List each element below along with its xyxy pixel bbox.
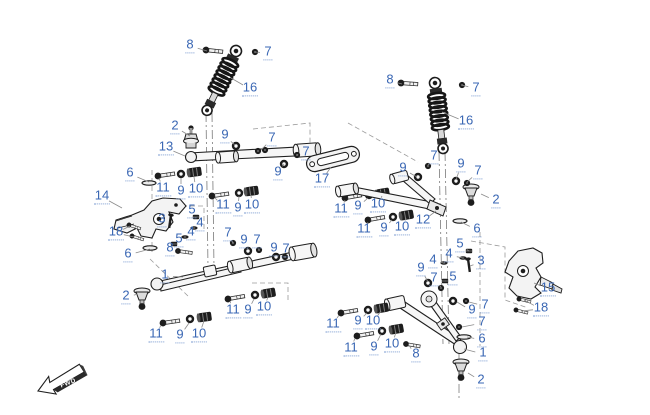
part-callout-11[interactable]: 11 xyxy=(215,197,231,213)
part-callout-9[interactable]: 9 xyxy=(175,327,184,343)
part-callout-3[interactable]: 3 xyxy=(157,211,166,227)
part-callout-7[interactable]: 7 xyxy=(223,225,232,241)
part-callout-17[interactable]: 17 xyxy=(314,171,330,187)
part-callout-10[interactable]: 10 xyxy=(384,336,400,352)
part-callout-8[interactable]: 8 xyxy=(411,346,420,362)
part-callout-5[interactable]: 5 xyxy=(455,236,464,252)
part-callout-10[interactable]: 10 xyxy=(370,196,386,212)
part-callout-9[interactable]: 9 xyxy=(239,232,248,248)
part-callout-16[interactable]: 16 xyxy=(458,113,474,129)
parts-diagram-page: FWD 871621397796119101411910534184586797… xyxy=(0,0,650,415)
part-callout-9[interactable]: 9 xyxy=(353,198,362,214)
part-callout-9[interactable]: 9 xyxy=(369,339,378,355)
part-callout-7[interactable]: 7 xyxy=(471,80,480,96)
part-callout-9[interactable]: 9 xyxy=(273,164,282,180)
part-callout-10[interactable]: 10 xyxy=(365,313,381,329)
part-callout-7[interactable]: 7 xyxy=(267,130,276,146)
part-callout-7[interactable]: 7 xyxy=(252,232,261,248)
part-callout-9[interactable]: 9 xyxy=(176,183,185,199)
part-callout-11[interactable]: 11 xyxy=(225,302,241,318)
part-callout-10[interactable]: 10 xyxy=(244,197,260,213)
part-callout-18[interactable]: 18 xyxy=(108,224,124,240)
part-callout-7[interactable]: 7 xyxy=(263,44,272,60)
part-callout-11[interactable]: 11 xyxy=(356,221,372,237)
part-callout-11[interactable]: 11 xyxy=(325,316,341,332)
part-callout-4[interactable]: 4 xyxy=(186,224,195,240)
part-callout-7[interactable]: 7 xyxy=(281,241,290,257)
part-callout-3[interactable]: 3 xyxy=(476,253,485,269)
part-callout-9[interactable]: 9 xyxy=(353,313,362,329)
part-callout-9[interactable]: 9 xyxy=(243,302,252,318)
part-callout-6[interactable]: 6 xyxy=(472,221,481,237)
part-callout-11[interactable]: 11 xyxy=(343,340,359,356)
part-callout-9[interactable]: 9 xyxy=(379,220,388,236)
part-callout-2[interactable]: 2 xyxy=(121,288,130,304)
part-callout-9[interactable]: 9 xyxy=(416,260,425,276)
part-callout-9[interactable]: 9 xyxy=(456,156,465,172)
part-callout-7[interactable]: 7 xyxy=(429,270,438,286)
part-callout-13[interactable]: 13 xyxy=(158,139,174,155)
part-callout-16[interactable]: 16 xyxy=(242,80,258,96)
part-callout-1[interactable]: 1 xyxy=(478,345,487,361)
part-callout-9[interactable]: 9 xyxy=(220,127,229,143)
part-callout-2[interactable]: 2 xyxy=(170,118,179,134)
part-callout-11[interactable]: 11 xyxy=(155,180,171,196)
part-callout-8[interactable]: 8 xyxy=(185,37,194,53)
part-callout-8[interactable]: 8 xyxy=(165,240,174,256)
part-callout-9[interactable]: 9 xyxy=(398,160,407,176)
part-callout-5[interactable]: 5 xyxy=(448,269,457,285)
part-callout-9[interactable]: 9 xyxy=(233,200,242,216)
part-callout-11[interactable]: 11 xyxy=(333,201,349,217)
part-callout-10[interactable]: 10 xyxy=(256,299,272,315)
part-callout-4[interactable]: 4 xyxy=(428,252,437,268)
part-callout-11[interactable]: 11 xyxy=(148,326,164,342)
part-callout-2[interactable]: 2 xyxy=(476,372,485,388)
part-callout-9[interactable]: 9 xyxy=(467,302,476,318)
part-callout-7[interactable]: 7 xyxy=(429,148,438,164)
part-callout-5[interactable]: 5 xyxy=(174,231,183,247)
part-callout-14[interactable]: 14 xyxy=(94,188,110,204)
part-callout-15[interactable]: 15 xyxy=(540,280,556,296)
part-callout-7[interactable]: 7 xyxy=(473,163,482,179)
part-callout-2[interactable]: 2 xyxy=(491,192,500,208)
part-callout-6[interactable]: 6 xyxy=(123,246,132,262)
part-callout-6[interactable]: 6 xyxy=(125,165,134,181)
callout-layer: 8716213977961191014119105341845867979712… xyxy=(0,0,650,415)
part-callout-10[interactable]: 10 xyxy=(188,181,204,197)
part-callout-7[interactable]: 7 xyxy=(301,144,310,160)
part-callout-4[interactable]: 4 xyxy=(444,246,453,262)
part-callout-7[interactable]: 7 xyxy=(477,314,486,330)
part-callout-10[interactable]: 10 xyxy=(394,219,410,235)
part-callout-8[interactable]: 8 xyxy=(385,72,394,88)
part-callout-12[interactable]: 12 xyxy=(415,212,431,228)
part-callout-10[interactable]: 10 xyxy=(191,326,207,342)
part-callout-9[interactable]: 9 xyxy=(269,240,278,256)
part-callout-18[interactable]: 18 xyxy=(533,300,549,316)
part-callout-7[interactable]: 7 xyxy=(480,297,489,313)
part-callout-1[interactable]: 1 xyxy=(160,267,169,283)
part-callout-4[interactable]: 4 xyxy=(195,215,204,231)
